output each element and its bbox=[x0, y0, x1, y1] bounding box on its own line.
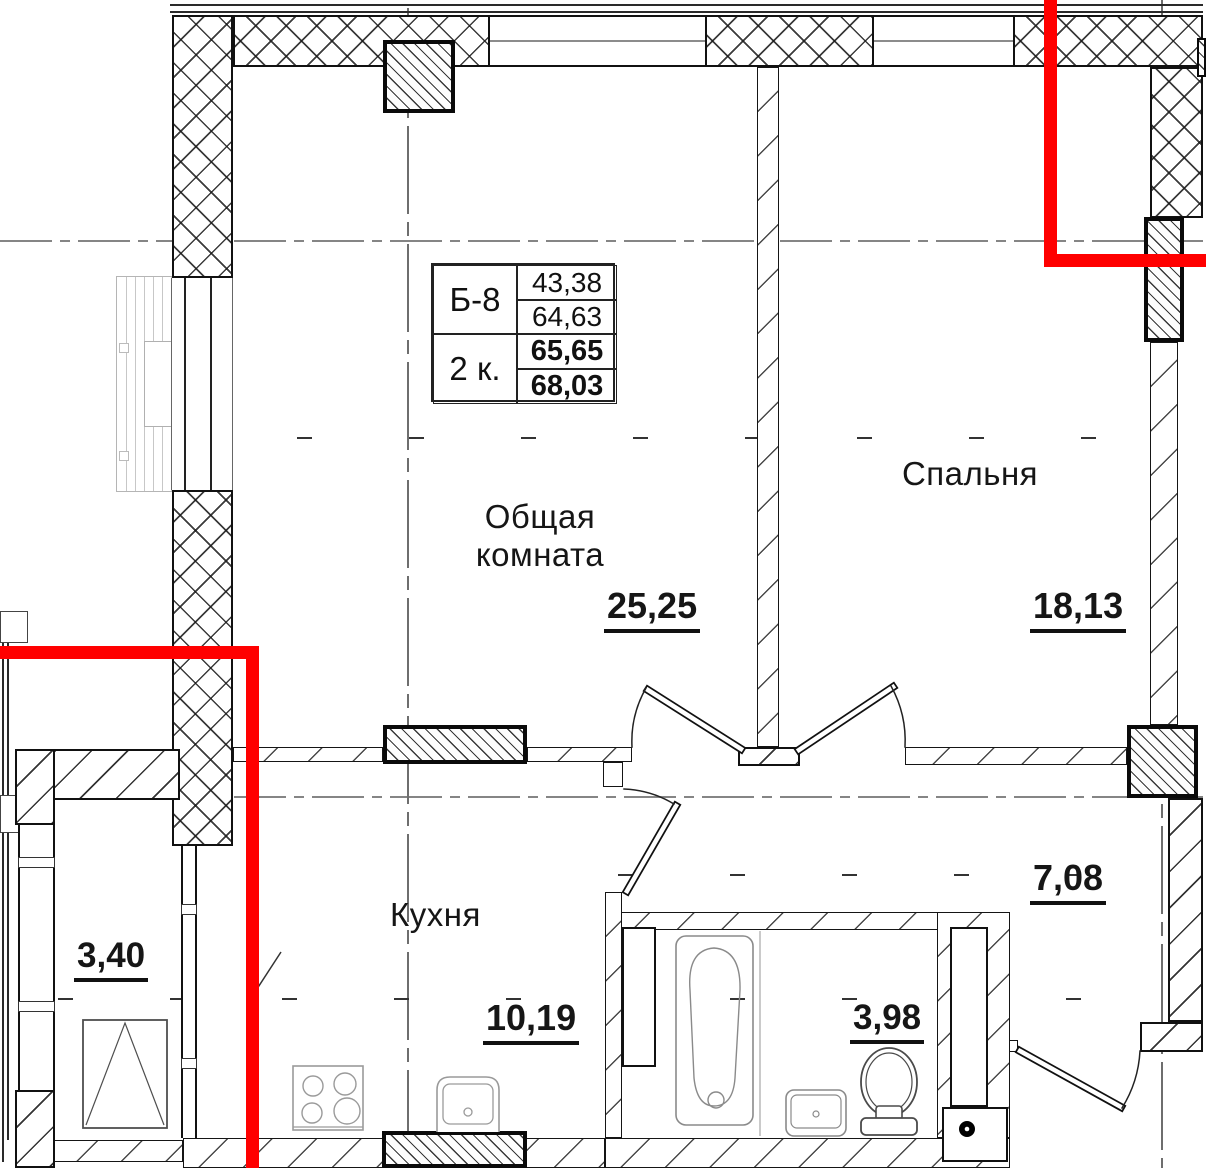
label-kitchen-area: 10,19 bbox=[483, 997, 579, 1045]
unit-area-1: 43,38 bbox=[517, 265, 617, 300]
door-bedroom bbox=[799, 686, 905, 750]
balcony-window-symbol bbox=[83, 1020, 167, 1128]
unit-area-2: 64,63 bbox=[517, 300, 617, 334]
door-entrance bbox=[1020, 1051, 1140, 1108]
label-balcony-area: 3,40 bbox=[74, 936, 148, 982]
unit-info-table: Б-8 43,38 64,63 2 к. 65,65 68,03 bbox=[431, 263, 615, 402]
section-line-right-horizontal bbox=[1044, 254, 1206, 267]
label-bedroom-area: 18,13 bbox=[1030, 585, 1126, 633]
door-kitchen bbox=[624, 789, 676, 891]
kitchen-sink-icon bbox=[437, 1077, 499, 1132]
bathtub-icon bbox=[676, 936, 753, 1125]
unit-area-4: 68,03 bbox=[517, 369, 617, 404]
door-living bbox=[632, 688, 741, 749]
label-bedroom: Спальня bbox=[880, 455, 1060, 493]
toilet-icon bbox=[861, 1048, 917, 1135]
label-living-line2: комната bbox=[420, 536, 660, 574]
label-living-area: 25,25 bbox=[604, 585, 700, 633]
label-kitchen: Кухня bbox=[390, 896, 481, 934]
label-living-room: Общая комната bbox=[420, 498, 660, 574]
section-line-right-vertical bbox=[1044, 0, 1057, 267]
unit-area-3: 65,65 bbox=[517, 334, 617, 369]
unit-label: Б-8 bbox=[433, 265, 517, 334]
bath-sink-icon bbox=[786, 1090, 846, 1136]
section-line-left-horizontal bbox=[0, 646, 259, 659]
fixtures-and-doors bbox=[0, 0, 1206, 1168]
unit-rooms-label: 2 к. bbox=[433, 334, 517, 404]
electrical-dot-icon bbox=[959, 1121, 975, 1137]
section-line-left-vertical bbox=[246, 646, 259, 1168]
label-bathroom-area: 3,98 bbox=[850, 998, 924, 1044]
stove-icon bbox=[293, 1066, 363, 1130]
floor-plan: Б-8 43,38 64,63 2 к. 65,65 68,03 Общая к… bbox=[0, 0, 1206, 1168]
label-living-line1: Общая bbox=[420, 498, 660, 536]
label-hall-area: 7,08 bbox=[1030, 857, 1106, 905]
